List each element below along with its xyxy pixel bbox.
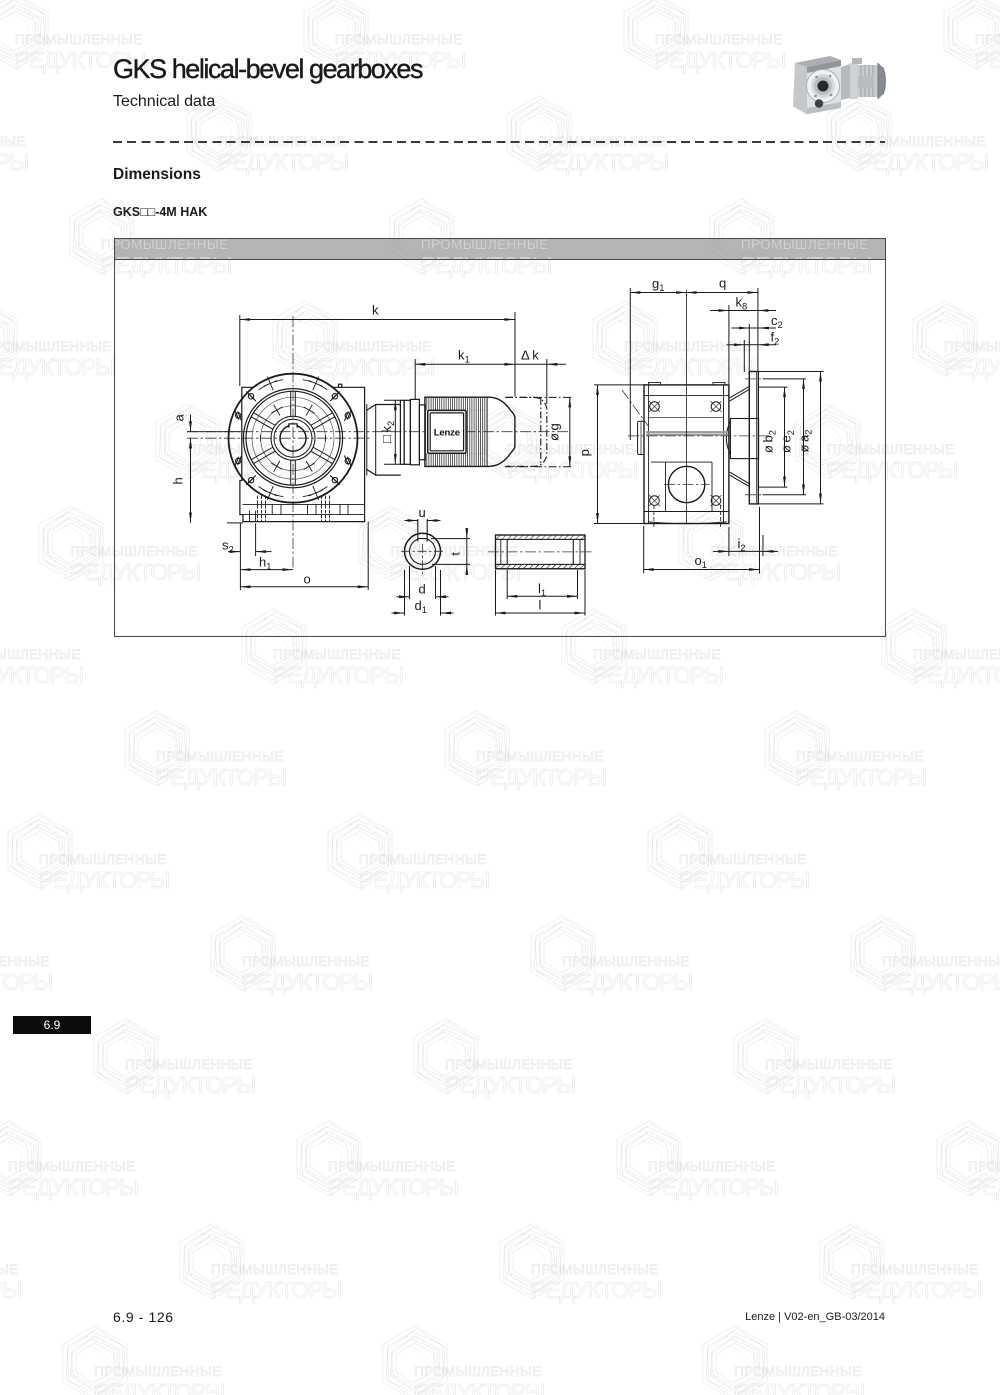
svg-text:o1: o1 bbox=[695, 553, 707, 570]
svg-text:ø a2: ø a2 bbox=[796, 430, 813, 453]
svg-text:p: p bbox=[577, 449, 592, 456]
svg-text:d: d bbox=[419, 581, 426, 596]
svg-text:l1: l1 bbox=[538, 581, 546, 598]
svg-text:h: h bbox=[171, 477, 186, 484]
svg-text:ø e2: ø e2 bbox=[779, 430, 796, 453]
svg-text:o: o bbox=[304, 572, 311, 587]
svg-text:g1: g1 bbox=[652, 276, 664, 293]
svg-text:t: t bbox=[449, 552, 463, 556]
svg-text:k1: k1 bbox=[458, 348, 470, 365]
svg-text:c2: c2 bbox=[771, 313, 783, 330]
svg-text:□ k2: □ k2 bbox=[379, 421, 396, 443]
svg-text:q: q bbox=[719, 276, 726, 291]
svg-text:h1: h1 bbox=[259, 555, 271, 572]
svg-text:l: l bbox=[539, 598, 542, 613]
svg-text:f2: f2 bbox=[771, 329, 780, 346]
svg-text:i2: i2 bbox=[738, 536, 746, 553]
svg-text:a: a bbox=[172, 414, 187, 422]
svg-text:ø b2: ø b2 bbox=[760, 430, 777, 453]
svg-text:d1: d1 bbox=[415, 598, 427, 615]
svg-text:k8: k8 bbox=[736, 294, 748, 311]
svg-text:Δ k: Δ k bbox=[521, 348, 539, 363]
svg-text:ø g: ø g bbox=[547, 423, 562, 441]
svg-text:k: k bbox=[372, 303, 379, 318]
svg-text:u: u bbox=[419, 505, 426, 520]
svg-text:Lenze: Lenze bbox=[434, 427, 460, 438]
svg-text:s2: s2 bbox=[222, 538, 234, 555]
